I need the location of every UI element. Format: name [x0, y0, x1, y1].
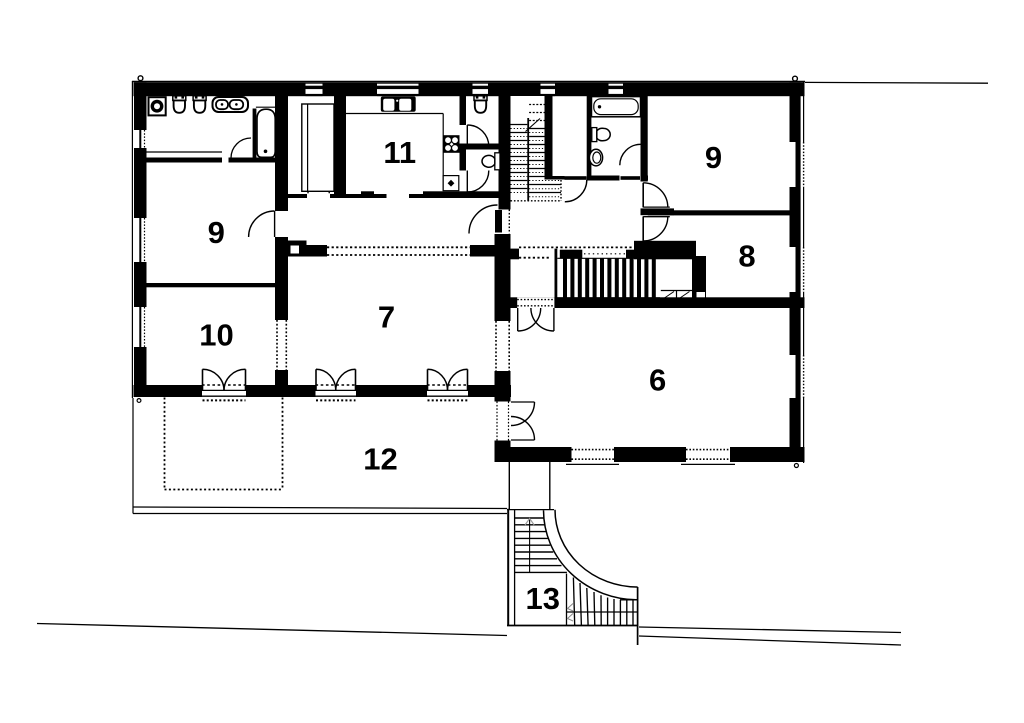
svg-text:9: 9: [705, 140, 722, 175]
svg-text:9: 9: [208, 215, 225, 250]
svg-text:8: 8: [738, 239, 755, 274]
svg-text:13: 13: [525, 581, 559, 616]
svg-text:11: 11: [383, 135, 416, 170]
svg-text:12: 12: [363, 442, 397, 477]
svg-text:7: 7: [378, 300, 395, 335]
svg-text:10: 10: [199, 318, 233, 353]
svg-text:6: 6: [649, 363, 666, 398]
